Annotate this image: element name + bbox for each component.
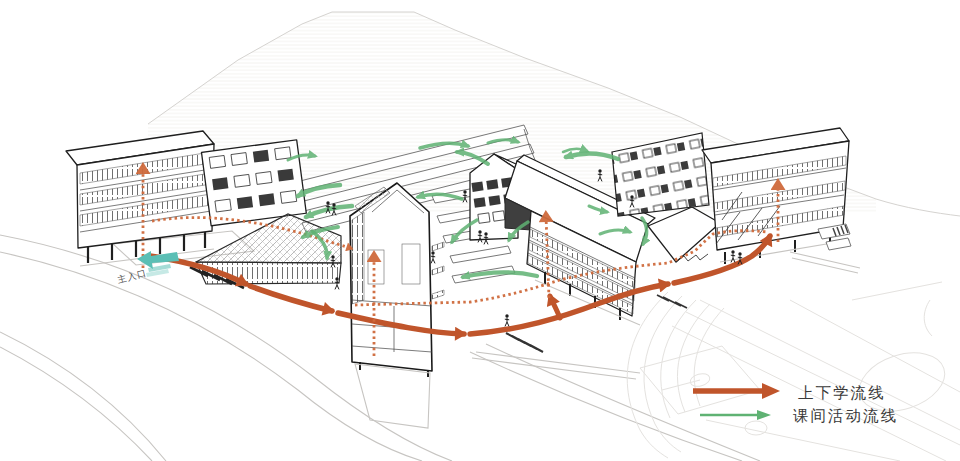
legend-item-activity: 课间活动流线 (700, 407, 898, 424)
building-left-slab (66, 131, 214, 266)
plaza-stairs-center (506, 333, 543, 352)
building-mid-facade (201, 140, 306, 226)
legend-commute-arrowhead-icon (762, 383, 780, 399)
annex-block (648, 207, 720, 262)
campus-circulation-diagram: 主入口 上下学流线 课间活动流线 (0, 0, 960, 461)
running-track (627, 292, 960, 461)
main-entrance-label: 主入口 (116, 268, 148, 285)
legend-activity-label: 课间活动流线 (793, 407, 898, 424)
legend-commute-label: 上下学流线 (798, 384, 886, 401)
legend-activity-arrowhead-icon (757, 410, 771, 420)
diagram-canvas: 主入口 上下学流线 课间活动流线 (0, 0, 960, 461)
sports-field (627, 282, 960, 461)
legend-item-commute: 上下学流线 (693, 383, 886, 401)
legend: 上下学流线 课间活动流线 (693, 383, 898, 424)
commute-branch-arrow (550, 296, 560, 318)
central-tower-section (350, 183, 444, 428)
